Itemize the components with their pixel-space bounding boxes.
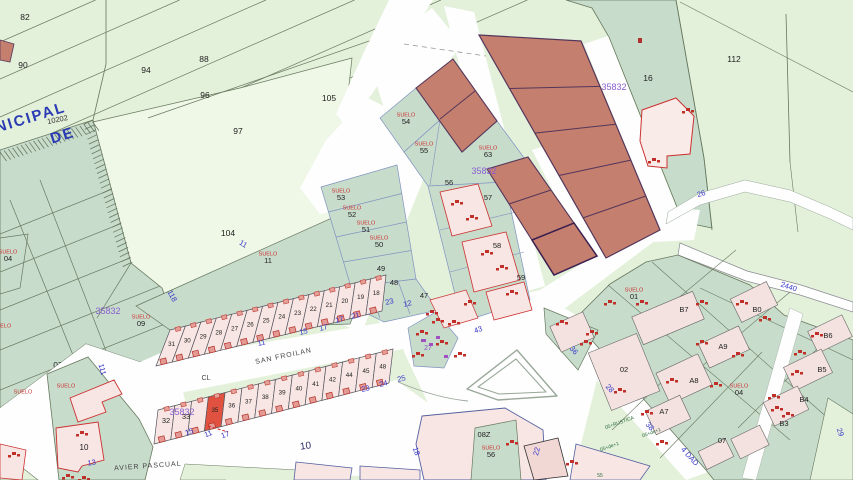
svg-text:35832: 35832 (471, 166, 496, 176)
svg-text:21: 21 (326, 302, 333, 309)
svg-text:56: 56 (445, 178, 453, 187)
svg-text:94: 94 (141, 65, 151, 75)
svg-text:10: 10 (80, 443, 89, 452)
svg-text:02: 02 (620, 365, 628, 374)
svg-text:38: 38 (262, 394, 269, 401)
svg-text:B6: B6 (823, 331, 832, 340)
svg-text:97: 97 (233, 126, 243, 136)
svg-text:57: 57 (484, 193, 492, 202)
svg-text:45: 45 (363, 368, 370, 375)
svg-text:48: 48 (390, 278, 398, 287)
svg-text:04: 04 (4, 254, 12, 263)
svg-text:36: 36 (228, 403, 235, 410)
svg-text:B0: B0 (752, 305, 761, 314)
svg-text:39: 39 (279, 390, 286, 397)
svg-text:90: 90 (18, 60, 28, 70)
svg-text:56: 56 (487, 450, 495, 459)
svg-text:31: 31 (168, 341, 175, 348)
svg-text:59: 59 (517, 273, 525, 282)
svg-text:23: 23 (294, 310, 301, 317)
svg-text:52: 52 (348, 210, 356, 219)
svg-text:112: 112 (727, 54, 741, 64)
svg-text:35832: 35832 (95, 306, 120, 316)
svg-text:11: 11 (264, 256, 272, 265)
svg-text:50: 50 (375, 240, 383, 249)
svg-text:42: 42 (329, 377, 336, 384)
svg-text:CL: CL (202, 375, 211, 382)
svg-text:32: 32 (162, 416, 170, 425)
svg-text:B4: B4 (799, 395, 808, 404)
svg-text:08Z: 08Z (478, 430, 491, 439)
svg-text:105: 105 (322, 93, 336, 103)
svg-text:01: 01 (630, 292, 638, 301)
svg-text:22: 22 (310, 306, 317, 313)
svg-text:54: 54 (402, 117, 410, 126)
svg-text:18: 18 (373, 290, 380, 297)
svg-text:A8: A8 (689, 376, 698, 385)
svg-text:B5: B5 (817, 365, 826, 374)
svg-text:49: 49 (377, 264, 385, 273)
svg-text:20: 20 (341, 298, 348, 305)
svg-text:A9: A9 (718, 342, 727, 351)
svg-text:28: 28 (215, 330, 222, 337)
svg-text:55: 55 (597, 473, 603, 479)
svg-text:104: 104 (221, 228, 235, 238)
svg-text:53: 53 (337, 193, 345, 202)
svg-text:25: 25 (263, 318, 270, 325)
svg-text:35: 35 (211, 407, 218, 414)
svg-text:SUELO: SUELO (57, 384, 76, 390)
svg-text:88: 88 (199, 54, 209, 64)
svg-text:40: 40 (295, 385, 302, 392)
svg-text:47: 47 (420, 291, 428, 300)
svg-text:04: 04 (735, 388, 743, 397)
svg-text:29: 29 (200, 333, 207, 340)
svg-text:30: 30 (184, 337, 191, 344)
svg-text:37: 37 (245, 398, 252, 405)
svg-text:24: 24 (278, 314, 285, 321)
svg-text:41: 41 (312, 381, 319, 388)
svg-text:63: 63 (484, 150, 492, 159)
svg-text:SUELO: SUELO (0, 324, 12, 330)
svg-text:44: 44 (346, 372, 353, 379)
svg-text:16: 16 (643, 73, 653, 83)
svg-text:B3: B3 (779, 419, 788, 428)
svg-text:33: 33 (182, 412, 190, 421)
svg-text:96: 96 (200, 90, 210, 100)
svg-text:27: 27 (424, 345, 432, 352)
svg-text:55: 55 (420, 146, 428, 155)
svg-text:82: 82 (20, 12, 30, 22)
svg-text:27: 27 (231, 326, 238, 333)
svg-text:19: 19 (357, 294, 364, 301)
svg-text:58: 58 (493, 241, 501, 250)
svg-text:A7: A7 (659, 407, 668, 416)
svg-text:SUELO: SUELO (14, 390, 33, 396)
svg-text:B7: B7 (679, 305, 688, 314)
svg-text:07: 07 (718, 436, 726, 445)
svg-text:09: 09 (137, 319, 145, 328)
svg-text:10: 10 (299, 440, 312, 453)
svg-text:26: 26 (247, 322, 254, 329)
svg-text:35832: 35832 (601, 82, 626, 92)
svg-text:48: 48 (379, 364, 386, 371)
svg-text:51: 51 (362, 225, 370, 234)
svg-text:13: 13 (87, 457, 97, 467)
